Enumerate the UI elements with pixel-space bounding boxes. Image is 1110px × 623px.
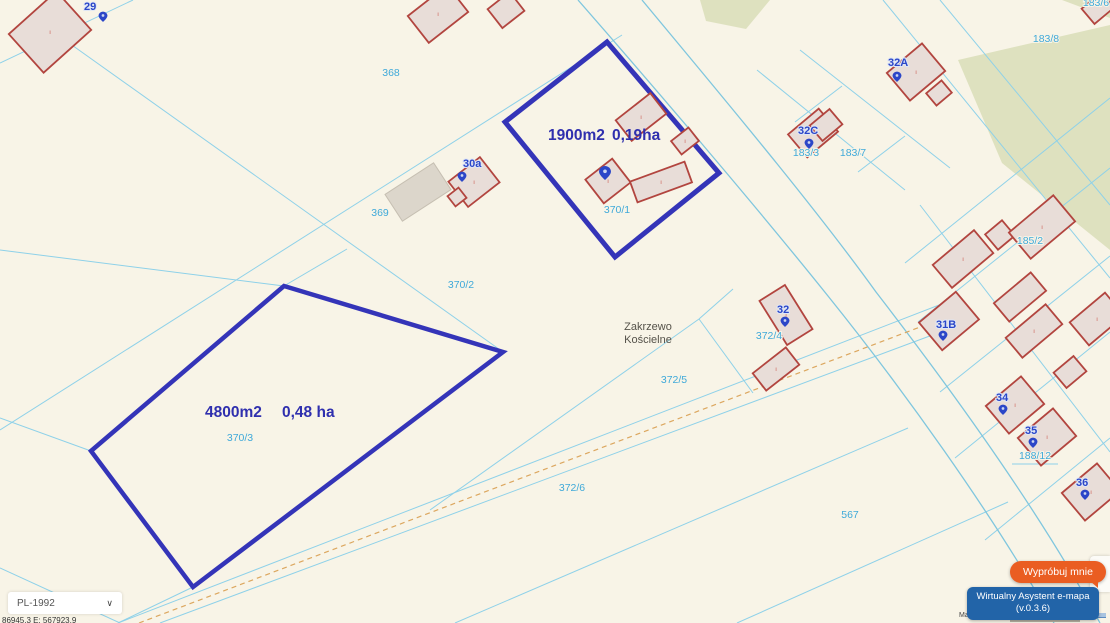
address-number-label-34: 34 xyxy=(996,392,1009,404)
crs-selector[interactable]: PL-1992 ∨ xyxy=(8,592,122,614)
building-storey-mark: i xyxy=(962,257,963,263)
address-pin-dot xyxy=(1032,440,1035,443)
parcel-number-label-372_4: 372/4 xyxy=(756,330,782,342)
parcel-number-label-183_8: 183/8 xyxy=(1033,33,1059,45)
parcel-number-label-183_6: 183/6 xyxy=(1083,0,1109,9)
building-storey-mark: i xyxy=(1041,225,1042,231)
address-pin-dot xyxy=(808,141,811,144)
cursor-coordinates: 86945.3 E: 567923.9 xyxy=(2,616,76,623)
building-storey-mark: i xyxy=(473,180,474,186)
try-me-bubble[interactable]: Wypróbuj mnie xyxy=(1010,561,1106,583)
address-pin-dot xyxy=(896,74,899,77)
building-storey-mark: i xyxy=(1046,435,1047,441)
building-storey-mark: i xyxy=(49,30,50,36)
address-pin-dot xyxy=(942,333,945,336)
address-number-label-29: 29 xyxy=(84,1,96,13)
address-pin-dot xyxy=(603,169,607,173)
address-number-label-35: 35 xyxy=(1025,425,1037,437)
parcel-number-label-369: 369 xyxy=(371,207,389,219)
address-number-label-32C: 32C xyxy=(798,125,818,137)
parcel-number-label-183_3: 183/3 xyxy=(793,147,819,159)
address-pin-dot xyxy=(784,319,787,322)
address-pin-dot xyxy=(1084,492,1087,495)
address-number-label-36: 36 xyxy=(1076,477,1088,489)
address-number-label-31B: 31B xyxy=(936,319,956,331)
place-name-label: Kościelne xyxy=(624,334,672,346)
address-pin-dot xyxy=(461,174,464,177)
parcel-number-label-183_7: 183/7 xyxy=(840,147,866,159)
address-number-label-32A: 32A xyxy=(888,57,908,69)
building-storey-mark: i xyxy=(684,139,685,145)
assistant-version: (v.0.3.6) xyxy=(971,603,1095,615)
chevron-down-icon: ∨ xyxy=(106,598,113,609)
building-storey-mark: i xyxy=(437,12,438,18)
building-storey-mark: i xyxy=(1090,490,1091,496)
parcel-number-label-567: 567 xyxy=(841,509,859,521)
map-viewport: iiiiiiiiiiiiiiiiii368369370/1370/2370/33… xyxy=(0,0,1110,623)
parcel-number-label-368: 368 xyxy=(382,67,400,79)
parcel-number-label-370_3: 370/3 xyxy=(227,432,253,444)
address-pin-dot xyxy=(1002,407,1005,410)
address-number-label-32: 32 xyxy=(777,304,789,316)
parcel-number-label-370_1: 370/1 xyxy=(604,204,630,216)
address-pin-dot xyxy=(102,14,105,17)
building-storey-mark: i xyxy=(640,115,641,121)
assistant-label: Wirtualny Asystent e-mapa xyxy=(971,591,1095,603)
building-storey-mark: i xyxy=(1014,403,1015,409)
address-number-label-30a: 30a xyxy=(463,158,482,170)
parcel-number-label-185_2: 185/2 xyxy=(1017,235,1043,247)
parcel-number-label-188_12: 188/12 xyxy=(1019,450,1051,462)
virtual-assistant-button[interactable]: Wirtualny Asystent e-mapa (v.0.3.6) xyxy=(967,587,1099,620)
building-storey-mark: i xyxy=(1033,329,1034,335)
map-canvas[interactable]: iiiiiiiiiiiiiiiiii368369370/1370/2370/33… xyxy=(0,0,1110,623)
parcel-number-label-372_5: 372/5 xyxy=(661,374,687,386)
building-storey-mark: i xyxy=(915,70,916,76)
place-name-label: Zakrzewo xyxy=(624,321,672,333)
building-storey-mark: i xyxy=(660,180,661,186)
building-storey-mark: i xyxy=(607,179,608,185)
parcel-area-label-p370_1: 1900m20,19ha xyxy=(548,127,661,144)
building-storey-mark: i xyxy=(1096,317,1097,323)
parcel-number-label-372_6: 372/6 xyxy=(559,482,585,494)
crs-value: PL-1992 xyxy=(17,598,55,609)
building-storey-mark: i xyxy=(775,367,776,373)
parcel-number-label-370_2: 370/2 xyxy=(448,279,474,291)
